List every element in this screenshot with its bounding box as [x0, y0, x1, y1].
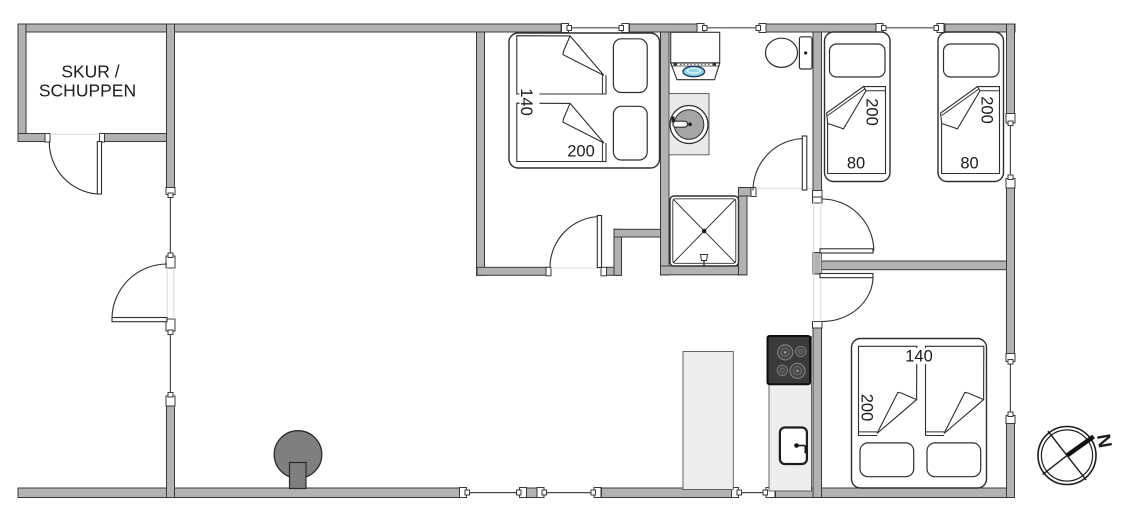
svg-text:SKUR /: SKUR / — [61, 62, 119, 82]
svg-text:SCHUPPEN: SCHUPPEN — [39, 81, 136, 101]
svg-text:140: 140 — [905, 348, 933, 366]
svg-text:200: 200 — [858, 394, 876, 422]
svg-text:N: N — [1092, 433, 1115, 450]
svg-text:200: 200 — [978, 96, 996, 124]
svg-text:80: 80 — [960, 155, 978, 173]
svg-text:140: 140 — [517, 88, 535, 116]
svg-text:200: 200 — [567, 143, 595, 161]
svg-text:80: 80 — [847, 155, 865, 173]
svg-text:200: 200 — [863, 98, 881, 126]
